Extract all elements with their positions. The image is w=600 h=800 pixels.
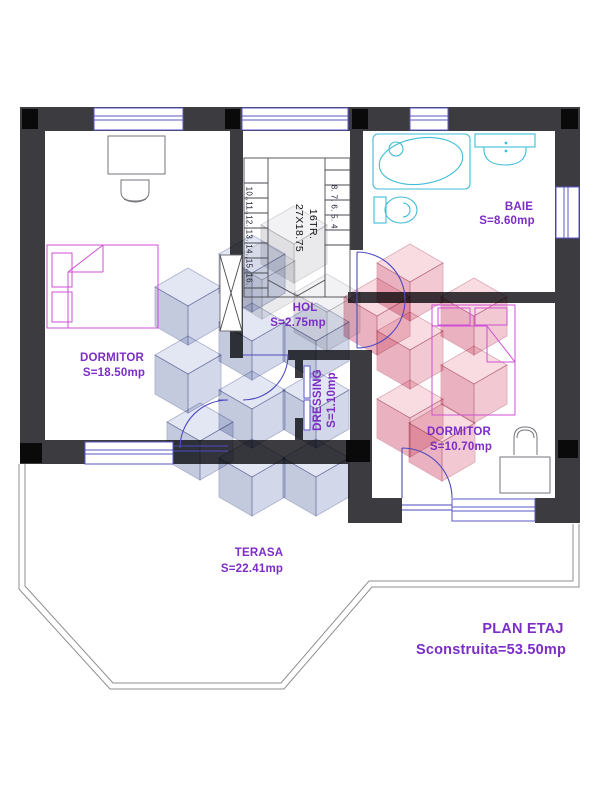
desk bbox=[500, 457, 550, 493]
chair bbox=[514, 427, 537, 455]
window bbox=[556, 187, 579, 238]
plan-built-area: Sconstruita=53.50mp bbox=[416, 642, 566, 658]
plan-title: PLAN ETAJ bbox=[482, 621, 563, 637]
window bbox=[410, 108, 448, 130]
room-area-baie: S=8.60mp bbox=[479, 215, 535, 227]
stair-tread-numbers-upper: 10.,11.,12.,13.,14.,15.,16. bbox=[245, 187, 254, 286]
desk bbox=[108, 136, 165, 174]
flue-shaft bbox=[220, 255, 242, 331]
room-area-dormitor-right: S=10.70mp bbox=[430, 441, 492, 453]
room-area-hol: S=2.75mp bbox=[270, 317, 326, 329]
room-label-dressing: DRESSING bbox=[312, 369, 324, 431]
room-area-dressing: S=1.10mp bbox=[326, 372, 338, 428]
window bbox=[94, 108, 183, 130]
room-area-dormitor-left: S=18.50mp bbox=[83, 367, 145, 379]
floor-plan: DORMITOR S=18.50mp BAIE S=8.60mp HOL S=2… bbox=[0, 0, 600, 800]
room-label-dormitor-left: DORMITOR bbox=[80, 352, 144, 364]
window bbox=[242, 108, 348, 130]
floor-plan-drawing bbox=[0, 0, 600, 800]
room-label-terasa: TERASA bbox=[235, 547, 283, 559]
watermark-cubes bbox=[155, 206, 507, 516]
room-label-hol: HOL bbox=[293, 302, 318, 314]
window bbox=[85, 442, 173, 464]
sink bbox=[475, 134, 535, 165]
stair-count-label: 16TR. bbox=[307, 209, 319, 240]
chair bbox=[121, 180, 149, 202]
toilet bbox=[374, 197, 417, 223]
room-label-dormitor-right: DORMITOR bbox=[427, 426, 491, 438]
door-dressing-sliding bbox=[304, 366, 310, 430]
room-area-terasa: S=22.41mp bbox=[221, 563, 283, 575]
stair-tread-size-label: 27X18.75 bbox=[293, 204, 305, 252]
bathtub bbox=[373, 132, 470, 189]
room-label-baie: BAIE bbox=[505, 201, 533, 213]
stair-tread-numbers-lower: 8. 7. 6. 5. 4. bbox=[330, 185, 339, 231]
bed bbox=[47, 245, 158, 328]
window bbox=[452, 499, 535, 521]
